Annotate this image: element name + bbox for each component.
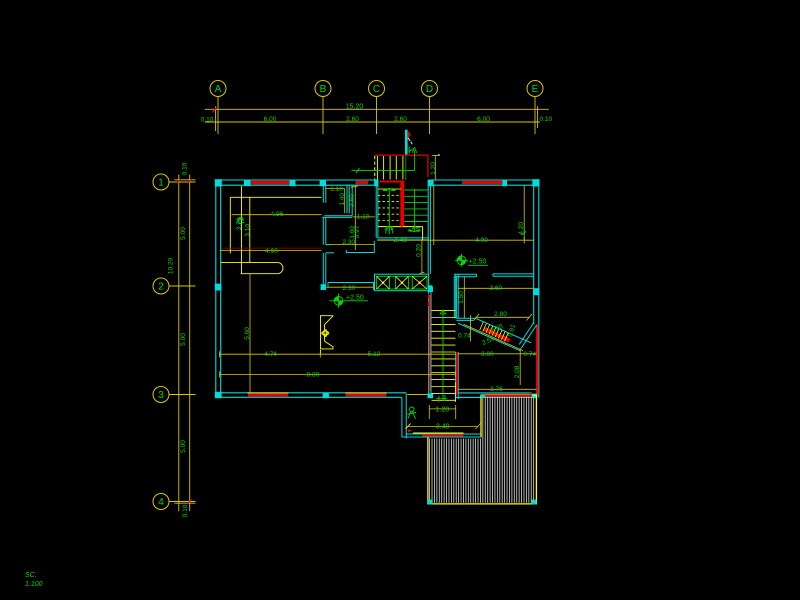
- svg-text:1.40: 1.40: [339, 193, 346, 206]
- svg-text:15.20: 15.20: [346, 104, 364, 111]
- svg-text:5.60: 5.60: [244, 327, 251, 340]
- svg-text:2.40: 2.40: [394, 237, 408, 244]
- svg-text:0.74: 0.74: [523, 351, 536, 358]
- svg-text:3.60: 3.60: [489, 285, 502, 292]
- svg-text:A: A: [412, 146, 418, 155]
- svg-text:4: 4: [158, 497, 164, 508]
- svg-text:4.74: 4.74: [264, 351, 277, 358]
- svg-text:1.10: 1.10: [330, 186, 343, 193]
- svg-text:2.60: 2.60: [394, 116, 407, 123]
- svg-text:3.76: 3.76: [490, 386, 503, 393]
- svg-text:10.20: 10.20: [168, 257, 175, 274]
- svg-text:5.00: 5.00: [180, 440, 187, 453]
- svg-text:1: 1: [158, 178, 164, 189]
- svg-text:SC.: SC.: [25, 572, 37, 579]
- svg-text:0.10: 0.10: [182, 504, 189, 517]
- svg-text:2.50: 2.50: [349, 194, 356, 207]
- svg-text:0.10: 0.10: [539, 116, 552, 123]
- svg-text:2: 2: [158, 282, 164, 293]
- svg-text:0.74: 0.74: [458, 332, 471, 339]
- svg-text:2.60: 2.60: [346, 116, 359, 123]
- svg-text:1.60: 1.60: [349, 226, 356, 239]
- svg-text:0.10: 0.10: [182, 162, 189, 175]
- svg-text:6.00: 6.00: [264, 116, 277, 123]
- svg-text:8.80: 8.80: [307, 371, 320, 378]
- svg-text:2.08: 2.08: [514, 365, 521, 378]
- svg-text:3.00: 3.00: [481, 351, 494, 358]
- svg-text:2.30: 2.30: [342, 239, 355, 246]
- svg-text:3.10: 3.10: [244, 224, 251, 237]
- svg-text:0.20: 0.20: [416, 244, 423, 257]
- svg-text:0.10: 0.10: [201, 116, 214, 123]
- svg-text:1:100: 1:100: [25, 581, 43, 588]
- svg-text:1.50: 1.50: [458, 291, 465, 304]
- svg-text:E: E: [532, 84, 539, 95]
- svg-text:1.20: 1.20: [435, 407, 449, 414]
- svg-text:1.20: 1.20: [430, 162, 437, 175]
- svg-text:+2.50: +2.50: [346, 294, 364, 301]
- svg-text:3.40: 3.40: [436, 424, 450, 431]
- svg-text:C: C: [373, 84, 380, 95]
- svg-text:2.80: 2.80: [494, 311, 507, 318]
- svg-text:6.00: 6.00: [477, 116, 490, 123]
- svg-text:4.96: 4.96: [271, 211, 284, 218]
- svg-text:+2.50: +2.50: [469, 258, 487, 265]
- svg-text:B: B: [320, 84, 327, 95]
- svg-text:1.10: 1.10: [357, 214, 370, 221]
- svg-text:4.90: 4.90: [475, 237, 488, 244]
- svg-text:A: A: [215, 84, 222, 95]
- svg-text:5.12: 5.12: [368, 351, 381, 358]
- svg-text:D: D: [426, 84, 433, 95]
- svg-text:3: 3: [158, 390, 164, 401]
- svg-text:4.90: 4.90: [265, 248, 278, 255]
- svg-text:2.30: 2.30: [343, 285, 356, 292]
- svg-text:5.00: 5.00: [180, 227, 187, 240]
- svg-text:3.70: 3.70: [236, 217, 243, 230]
- svg-text:5.00: 5.00: [180, 333, 187, 346]
